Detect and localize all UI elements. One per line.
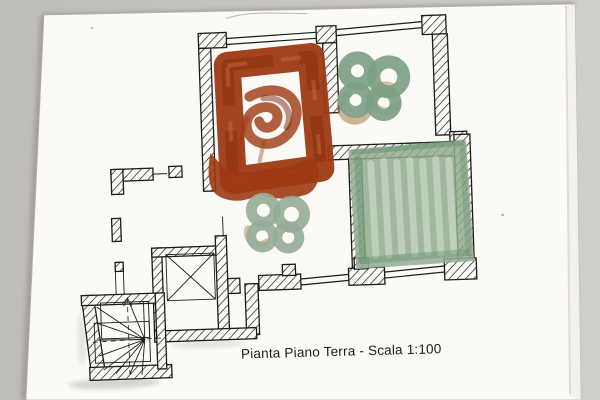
green-flower-center (246, 197, 305, 250)
floor-plan-drawing: Pianta Piano Terra - Scala 1:100 (0, 0, 600, 400)
photo-of-floor-plan: Pianta Piano Terra - Scala 1:100 (0, 0, 600, 400)
green-flower-top-right (339, 56, 405, 121)
green-washed-room (348, 140, 474, 269)
